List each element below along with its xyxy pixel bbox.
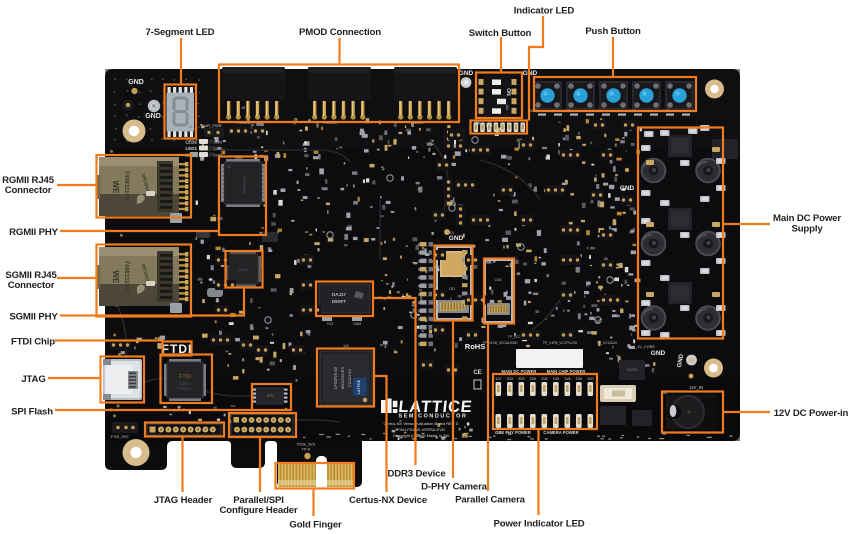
svg-text:7498111001: 7498111001 (123, 261, 129, 294)
svg-text:Certus-NX Device: Certus-NX Device (349, 495, 427, 506)
svg-text:21022H10: 21022H10 (347, 368, 352, 387)
svg-text:3V3: 3V3 (507, 377, 513, 381)
svg-text:7498111001: 7498111001 (123, 171, 129, 204)
svg-text:12V DC Power-in: 12V DC Power-in (774, 408, 849, 419)
svg-text:1V0: 1V0 (576, 377, 582, 381)
svg-text:J8: J8 (241, 106, 245, 110)
svg-text:8802S6CES: 8802S6CES (340, 367, 345, 389)
svg-text:GND: GND (459, 70, 474, 77)
svg-text:GND: GND (449, 235, 464, 242)
svg-text:Configure Header: Configure Header (219, 505, 298, 516)
svg-text:LED2: LED2 (185, 140, 197, 145)
svg-text:CAMERA POWER: CAMERA POWER (543, 430, 578, 435)
svg-text:D34: D34 (214, 146, 222, 151)
svg-text:12V_IN: 12V_IN (689, 385, 703, 390)
svg-text:Push Button: Push Button (585, 26, 641, 37)
svg-text:CE: CE (473, 370, 481, 376)
svg-text:TP_V1P8_VCCPLLSD: TP_V1P8_VCCPLLSD (543, 341, 578, 345)
svg-text:Main DC Power: Main DC Power (773, 213, 841, 224)
svg-text:SPI Flash: SPI Flash (11, 407, 53, 418)
svg-text:XQ45-C: XQ45-C (179, 382, 192, 386)
svg-text:2V5: 2V5 (530, 377, 536, 381)
svg-text:3V3: 3V3 (518, 377, 524, 381)
svg-text:U3: U3 (343, 343, 349, 348)
svg-text:FTDI Chip: FTDI Chip (11, 337, 55, 348)
svg-text:Connector: Connector (8, 280, 55, 291)
svg-text:P/N:LFD2NX-VERSA-EVN: P/N:LFD2NX-VERSA-EVN (397, 427, 445, 432)
svg-text:PMOD Connection: PMOD Connection (299, 27, 381, 38)
svg-text:C43: C43 (327, 322, 333, 326)
svg-text:LED1: LED1 (185, 146, 197, 151)
svg-text:GND: GND (651, 350, 666, 357)
svg-text:GBE PHY POWER: GBE PHY POWER (495, 430, 531, 435)
svg-text:Indicator LED: Indicator LED (514, 6, 575, 17)
svg-text:12V: 12V (495, 377, 502, 381)
svg-text:Power Indicator LED: Power Indicator LED (494, 519, 585, 530)
svg-text:7-Segment LED: 7-Segment LED (146, 27, 215, 38)
svg-text:D-PHY Camera: D-PHY Camera (421, 482, 488, 493)
svg-text:Copyright (C)2020 Made_in TW: Copyright (C)2020 Made_in TW (393, 433, 450, 438)
svg-text:F1224HL: F1224HL (178, 387, 192, 391)
svg-text:WE: WE (111, 271, 120, 285)
svg-text:C81: C81 (449, 287, 455, 291)
svg-text:WE: WE (111, 181, 120, 195)
svg-text:Gold Finger: Gold Finger (289, 520, 342, 531)
svg-text:TP_VCCAUX: TP_VCCAUX (597, 341, 618, 345)
svg-text:Parallel Camera: Parallel Camera (455, 495, 526, 506)
svg-text:C868: C868 (353, 322, 361, 326)
svg-text:TP13: TP13 (444, 230, 454, 235)
svg-text:DAJ17: DAJ17 (332, 292, 347, 297)
svg-text:PCIE_3V3: PCIE_3V3 (297, 443, 315, 447)
svg-text:SGMII: SGMII (238, 268, 248, 272)
svg-text:TP-D: TP-D (302, 448, 311, 452)
svg-text:SEMICONDUCTOR: SEMICONDUCTOR (399, 414, 468, 420)
svg-text:D9SFT: D9SFT (332, 299, 347, 304)
svg-text:XRX8236: XRX8236 (242, 176, 247, 194)
svg-text:1V5: 1V5 (553, 377, 559, 381)
svg-text:Connector: Connector (5, 185, 52, 196)
svg-text:1V8: 1V8 (541, 377, 547, 381)
svg-text:DDR3 Device: DDR3 Device (387, 469, 445, 480)
svg-text:GND: GND (128, 79, 144, 86)
svg-text:UR_PWR: UR_PWR (204, 123, 221, 128)
svg-text:D33: D33 (214, 140, 222, 145)
svg-text:GND: GND (620, 185, 635, 192)
svg-text:GND: GND (145, 113, 161, 120)
svg-text:RGMII PHY: RGMII PHY (9, 227, 59, 238)
svg-text:1V8: 1V8 (564, 377, 570, 381)
svg-text:CN3: CN3 (494, 278, 501, 282)
svg-text:ON: ON (505, 88, 511, 96)
svg-text:VCC_1V_CORE: VCC_1V_CORE (627, 345, 655, 349)
svg-text:FTDI: FTDI (179, 374, 192, 380)
svg-text:Supply: Supply (791, 224, 823, 235)
svg-text:JA4: JA4 (505, 104, 509, 110)
svg-text:JFM: JFM (266, 393, 274, 398)
svg-text:JTAG: JTAG (21, 374, 45, 385)
svg-text:V121D: V121D (627, 368, 638, 372)
svg-text:1V0: 1V0 (587, 377, 593, 381)
svg-text:JTAG Header: JTAG Header (154, 495, 213, 506)
svg-text:LATTICE: LATTICE (357, 379, 361, 394)
svg-text:LFD2NX-40: LFD2NX-40 (333, 366, 338, 389)
svg-text:Switch Button: Switch Button (469, 28, 532, 39)
svg-text:FTDI_RST: FTDI_RST (111, 435, 130, 439)
svg-text:Certus-NX Versa Evaluation Boa: Certus-NX Versa Evaluation Board REV D (384, 421, 459, 426)
svg-text:SGMII PHY: SGMII PHY (9, 312, 58, 323)
